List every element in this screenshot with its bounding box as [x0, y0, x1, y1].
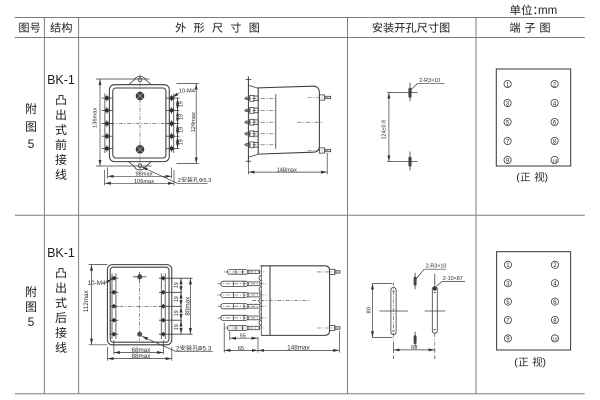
svg-text:19: 19 [178, 114, 184, 120]
svg-text:BK-1: BK-1 [47, 246, 75, 260]
svg-text:): ) [543, 357, 547, 369]
svg-text:2-R3×10: 2-R3×10 [419, 78, 440, 84]
svg-text:68: 68 [411, 345, 417, 351]
svg-text:19: 19 [174, 282, 180, 288]
svg-text:19: 19 [178, 139, 184, 145]
svg-text:mm: mm [538, 5, 557, 17]
svg-text:19: 19 [174, 310, 180, 316]
svg-text:(: ( [514, 357, 518, 369]
svg-text:19: 19 [174, 296, 180, 302]
svg-text:55: 55 [240, 334, 246, 340]
svg-text:Φ5.3: Φ5.3 [199, 178, 211, 184]
svg-text:(: ( [516, 172, 520, 184]
svg-text:124max: 124max [191, 112, 197, 132]
svg-text:10-M4: 10-M4 [88, 280, 106, 287]
svg-text:65: 65 [238, 346, 244, 352]
svg-text:124±0.8: 124±0.8 [382, 120, 388, 139]
svg-text:): ) [545, 172, 549, 184]
svg-text:98max: 98max [135, 172, 152, 178]
svg-text:Φ5.3: Φ5.3 [198, 346, 212, 353]
svg-text:19: 19 [174, 324, 180, 330]
svg-text:2-R3×10: 2-R3×10 [426, 264, 447, 270]
svg-text:BK-1: BK-1 [47, 73, 75, 87]
svg-text:5: 5 [28, 137, 35, 151]
svg-text:19: 19 [178, 101, 184, 107]
svg-text:106max: 106max [134, 179, 154, 185]
svg-text:10: 10 [552, 337, 558, 342]
svg-text:148max: 148max [277, 168, 297, 174]
svg-text:148max: 148max [287, 345, 310, 352]
svg-text:10-M4: 10-M4 [179, 88, 195, 94]
svg-text:88max: 88max [132, 353, 152, 360]
svg-text:80max: 80max [184, 296, 191, 316]
svg-text:112max: 112max [83, 289, 90, 312]
svg-text:10: 10 [552, 158, 558, 163]
svg-text:5: 5 [28, 315, 35, 329]
svg-text:2: 2 [178, 178, 181, 184]
svg-text:2-10×87: 2-10×87 [443, 276, 463, 282]
svg-text:136max: 136max [92, 108, 98, 128]
svg-text:19: 19 [178, 127, 184, 133]
svg-text:80: 80 [366, 307, 372, 313]
svg-text:2: 2 [176, 346, 180, 353]
